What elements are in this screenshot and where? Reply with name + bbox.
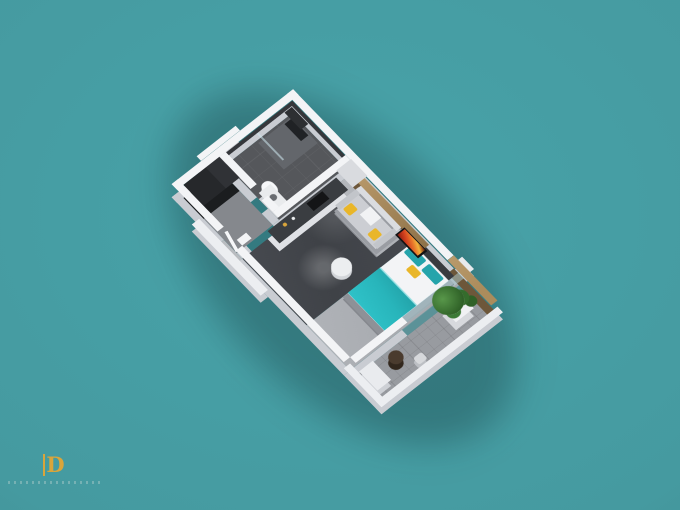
logo-subtext-line <box>8 481 100 484</box>
balcony-round-table <box>385 353 407 373</box>
studio-watermark: D <box>8 454 100 484</box>
render-canvas: D <box>0 0 680 510</box>
logo-monogram: D <box>43 454 64 476</box>
